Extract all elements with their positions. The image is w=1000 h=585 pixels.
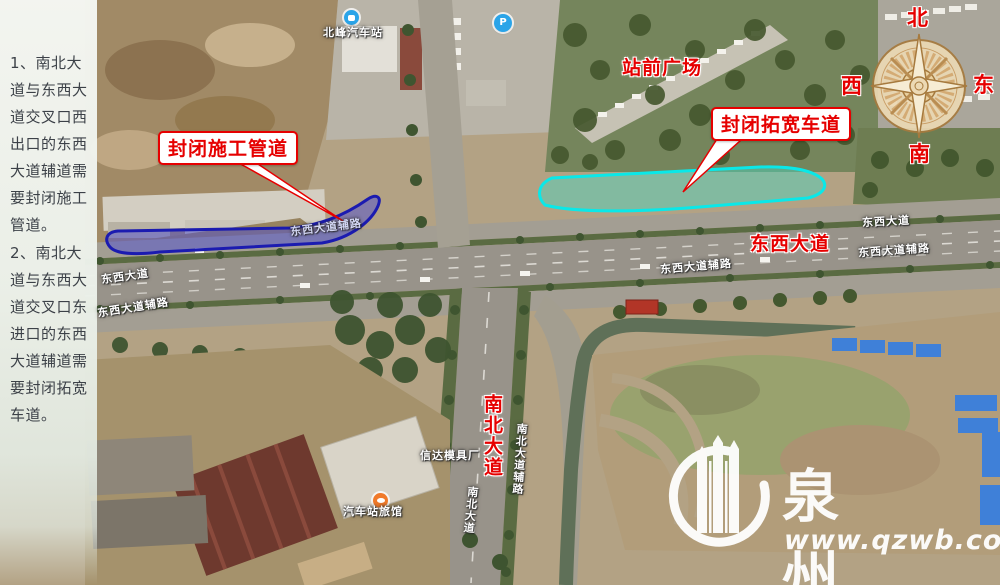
closure-widen-region xyxy=(540,167,825,211)
widen-closure-callout: 封闭拓宽车道 xyxy=(711,107,851,141)
compass-east-label: 东 xyxy=(973,69,994,99)
annotated-satellite-map: 1、南北大道与东西大道交叉口西出口的东西大道辅道需要封闭施工管道。 2、南北大道… xyxy=(0,0,1000,585)
ew-avenue-label-right: 东西大道 xyxy=(862,212,911,230)
bus-station-poi-icon xyxy=(344,10,359,25)
mold-factory-label: 信达模具厂 xyxy=(420,447,480,463)
watermark-site-name: 泉州网 xyxy=(782,451,842,585)
east-west-avenue-label: 东西大道 xyxy=(750,229,830,256)
watermark-url: www.qzwb.com xyxy=(784,525,1000,556)
qzwb-logo-icon xyxy=(660,433,778,558)
compass-south-label: 南 xyxy=(909,138,930,168)
compass-west-label: 西 xyxy=(841,70,862,100)
compass-north-label: 北 xyxy=(907,2,928,32)
pipeline-callout-arrow xyxy=(228,157,343,221)
parking-icon: P xyxy=(499,18,506,28)
station-inn-label: 汽车站旅馆 xyxy=(343,503,403,519)
north-south-avenue-label: 南北大道 xyxy=(479,394,506,478)
parking-poi-icon: P xyxy=(494,14,512,32)
bus-icon xyxy=(348,15,355,21)
pipeline-closure-callout: 封闭施工管道 xyxy=(158,131,298,165)
bus-station-label: 北峰汽车站 xyxy=(323,24,383,40)
station-plaza-label: 站前广场 xyxy=(622,53,702,80)
